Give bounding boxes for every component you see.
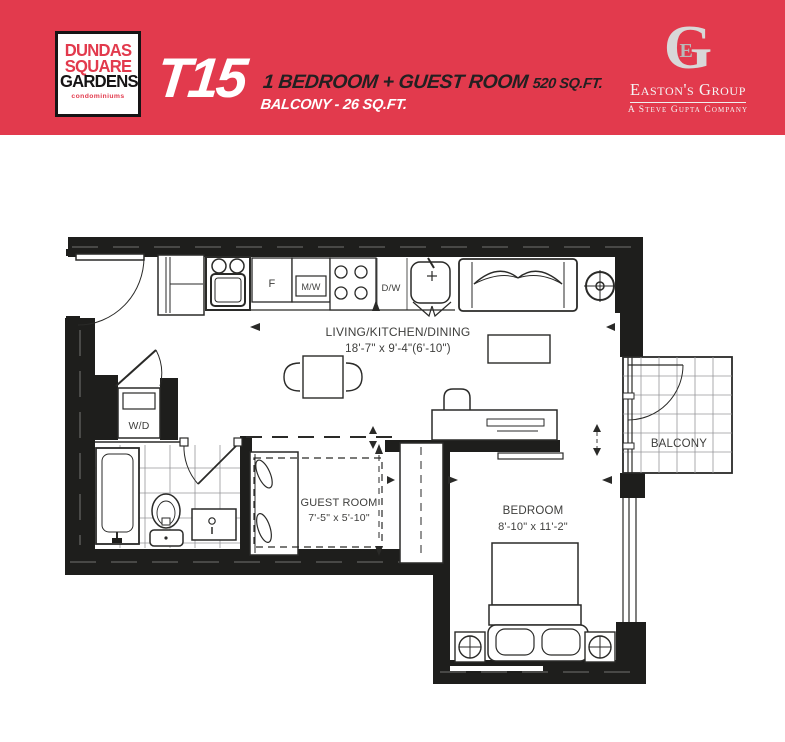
washer-dryer-label: W/D: [128, 420, 149, 432]
coffee-table: [488, 335, 550, 363]
guest-room-dims: 7'-5" x 5'-10": [308, 512, 370, 524]
fridge-label: F: [269, 278, 276, 290]
bedroom-window: [450, 666, 543, 671]
entry-closet: [158, 255, 204, 315]
fridge: F: [252, 258, 292, 302]
balcony-label: BALCONY: [651, 438, 707, 450]
vanity-sink: [192, 509, 236, 540]
dining-set: [284, 356, 362, 398]
bathroom-door: [180, 438, 242, 484]
floorplan-page: DUNDAS SQUARE GARDENS condominiums T15 1…: [0, 0, 785, 742]
living-room-dims: 18'-7" x 9'-4"(6'-10"): [345, 343, 451, 355]
dishwasher-label: D/W: [381, 283, 400, 294]
desk: [432, 389, 557, 440]
media-shelf: [498, 453, 563, 459]
desk-chair: [444, 389, 470, 411]
bedroom: BEDROOM 8'-10" x 11'-2": [448, 424, 636, 662]
microwave-label: M/W: [301, 282, 320, 292]
nightstand-right: [585, 632, 615, 662]
entry-door: [76, 254, 144, 325]
stove: [330, 258, 376, 310]
guest-room: GUEST ROOM 7'-5" x 5'-10": [246, 426, 395, 556]
bedroom-closet: [400, 443, 443, 563]
bifold-door: [116, 350, 156, 386]
guest-room-name: GUEST ROOM: [301, 497, 378, 509]
bedroom-dims: 8'-10" x 11'-2": [498, 521, 568, 533]
living-room-name: LIVING/KITCHEN/DINING: [326, 325, 471, 339]
living-room-label: LIVING/KITCHEN/DINING 18'-7" x 9'-4"(6'-…: [326, 325, 471, 355]
kitchen-sink: [411, 258, 451, 316]
laundry-sink: [206, 257, 250, 310]
bed: [488, 543, 588, 661]
washer-dryer-closet: W/D: [116, 350, 162, 438]
toilet: [150, 494, 183, 546]
nightstand-left: [455, 632, 485, 662]
bedroom-name: BEDROOM: [503, 505, 564, 517]
bedroom-side-window: [623, 498, 636, 622]
floorplan-drawing: F M/W D/W: [0, 0, 785, 742]
sofa: [459, 259, 577, 311]
microwave: M/W: [292, 258, 330, 302]
balcony: BALCONY: [623, 357, 732, 473]
column-marker-icon: [584, 270, 616, 302]
bathtub: [96, 448, 139, 544]
